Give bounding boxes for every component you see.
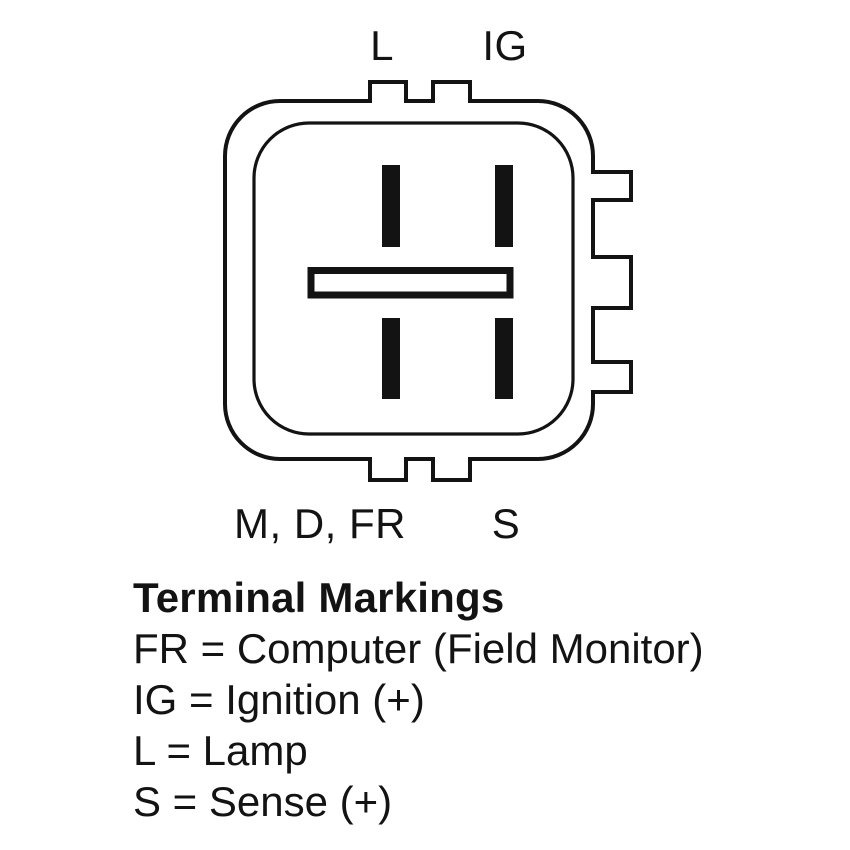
terminal-pin-bottom-right xyxy=(495,318,513,399)
legend-entry-fr: FR = Computer (Field Monitor) xyxy=(133,623,704,674)
pin-label-M-D-FR: M, D, FR xyxy=(234,503,406,545)
alternator-connector-diagram: L IG M, D, FR S Terminal Markings FR = C… xyxy=(0,0,850,850)
terminal-slot-horizontal xyxy=(311,271,510,296)
terminal-pin-top-right xyxy=(495,165,513,247)
terminal-markings-legend: Terminal Markings FR = Computer (Field M… xyxy=(133,572,704,827)
terminal-pin-bottom-left xyxy=(382,318,400,399)
legend-entry-s: S = Sense (+) xyxy=(133,776,704,827)
terminal-pin-top-left xyxy=(382,165,400,247)
legend-title: Terminal Markings xyxy=(133,572,704,623)
legend-entry-ig: IG = Ignition (+) xyxy=(133,674,704,725)
pin-label-IG: IG xyxy=(482,25,527,67)
pin-label-S: S xyxy=(492,503,521,545)
pin-label-L: L xyxy=(370,25,394,67)
legend-entry-l: L = Lamp xyxy=(133,725,704,776)
